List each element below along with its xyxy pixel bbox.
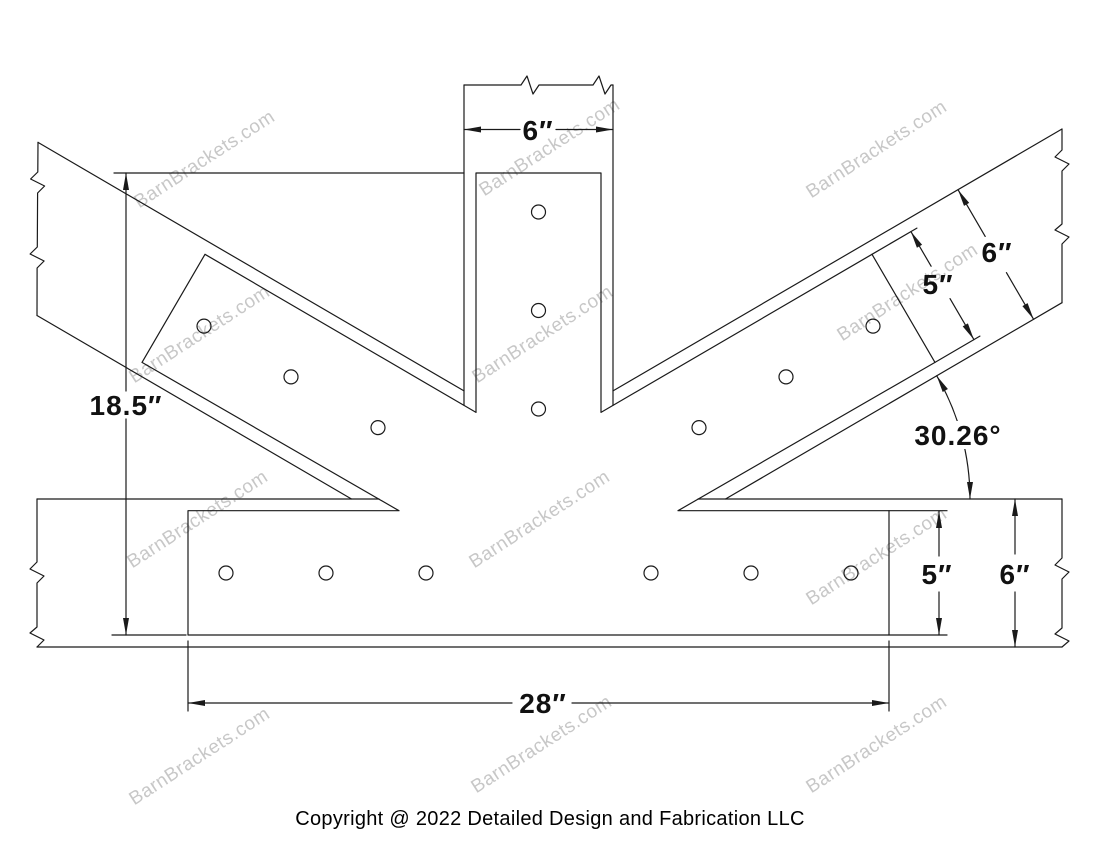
bolt-hole <box>284 370 298 384</box>
dimension-lines <box>112 130 1034 712</box>
break-line-right-beam <box>1055 129 1069 303</box>
bolt-hole <box>866 319 880 333</box>
arrowhead <box>967 482 973 499</box>
arrowhead <box>937 376 948 392</box>
arrowhead <box>911 232 922 248</box>
beam-outlines <box>30 76 1069 647</box>
arrowhead <box>958 190 969 206</box>
dimension-label-arm-plate-width: 5″ <box>923 269 954 300</box>
arrowhead <box>1022 303 1033 319</box>
bolt-hole <box>371 421 385 435</box>
bolt-hole <box>644 566 658 580</box>
dim-height-ext <box>112 173 464 635</box>
bolt-hole <box>219 566 233 580</box>
arrowhead <box>963 323 974 339</box>
bolt-hole <box>532 304 546 318</box>
bolt-hole <box>532 205 546 219</box>
arrowhead <box>123 618 129 635</box>
bolt-hole <box>419 566 433 580</box>
arrowhead <box>123 173 129 190</box>
copyright-text: Copyright @ 2022 Detailed Design and Fab… <box>0 808 1100 831</box>
dimension-arrowheads <box>123 127 1034 707</box>
break-line-bottom-right <box>1055 499 1069 647</box>
bolt-hole <box>319 566 333 580</box>
break-line-top <box>464 76 613 94</box>
technical-drawing-canvas: BarnBrackets.comBarnBrackets.comBarnBrac… <box>0 0 1100 850</box>
break-line-bottom-left <box>30 499 44 647</box>
dimension-label-angle: 30.26° <box>914 420 1001 451</box>
dimension-label-arm-beam-width: 6″ <box>982 237 1013 268</box>
bolt-hole <box>844 566 858 580</box>
dimension-label-plate-height: 5″ <box>922 559 953 590</box>
left-beam-bottom-edge <box>37 316 352 500</box>
bolt-hole <box>779 370 793 384</box>
arrowhead <box>188 700 205 706</box>
bolt-hole <box>744 566 758 580</box>
bracket-diagram: 6″ 18.5″ 28″ 5″ 6″ 5″ 6″ 30.26° <box>0 0 1100 850</box>
dimension-label-top-width: 6″ <box>523 115 554 146</box>
arrowhead <box>1012 499 1018 516</box>
arrowhead <box>596 127 613 133</box>
dimension-label-beam-height: 6″ <box>1000 559 1031 590</box>
bolt-holes <box>197 205 880 580</box>
bolt-hole <box>532 402 546 416</box>
arrowhead <box>872 700 889 706</box>
bolt-hole <box>692 421 706 435</box>
arrowhead <box>1012 630 1018 647</box>
break-line-left-beam <box>30 142 44 315</box>
arrowhead <box>464 127 481 133</box>
right-beam-bottom-edge <box>726 303 1063 499</box>
bracket-outline <box>142 173 935 635</box>
dimension-label-overall-height: 18.5″ <box>90 390 163 421</box>
dimension-label-plate-length: 28″ <box>519 688 567 719</box>
arrowhead <box>936 511 942 528</box>
bolt-hole <box>197 319 211 333</box>
arrowhead <box>936 618 942 635</box>
